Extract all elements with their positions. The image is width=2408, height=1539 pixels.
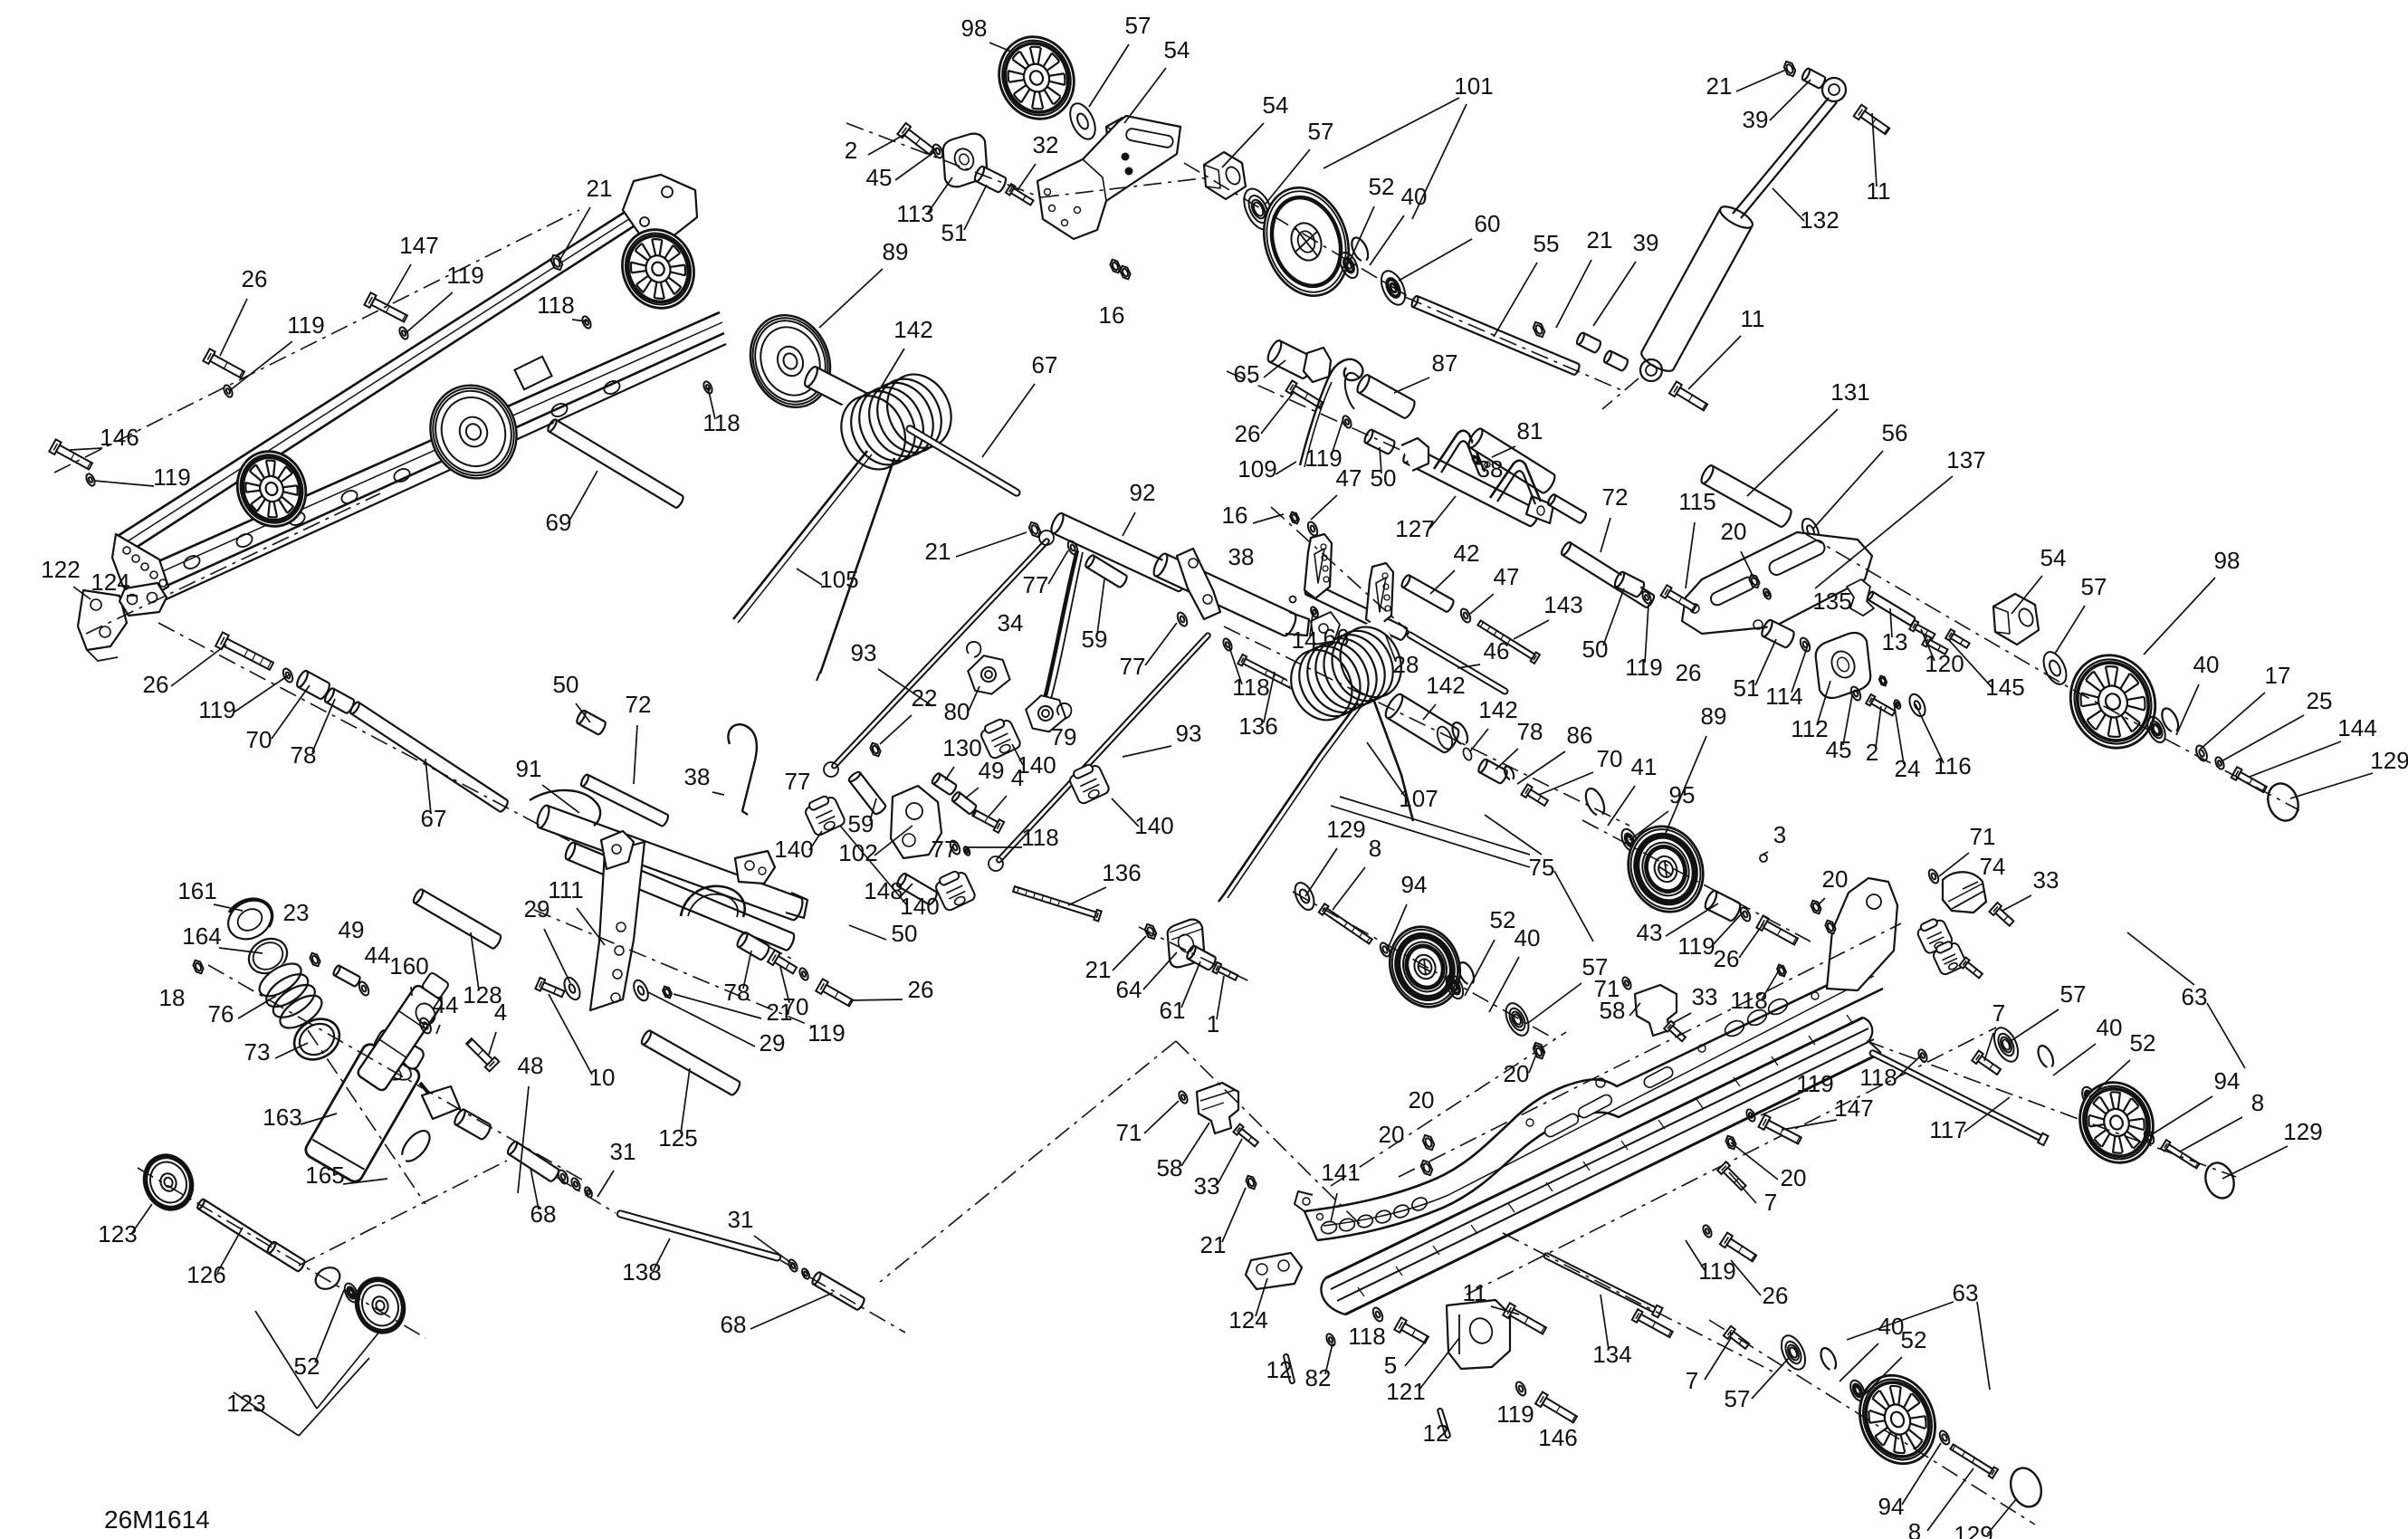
- svg-text:165: 165: [305, 1161, 344, 1189]
- svg-text:17: 17: [2265, 662, 2291, 689]
- svg-text:98: 98: [2214, 547, 2241, 574]
- svg-text:7: 7: [1992, 999, 2005, 1027]
- svg-text:21: 21: [1587, 226, 1613, 253]
- svg-text:93: 93: [1176, 720, 1202, 747]
- svg-text:21: 21: [767, 999, 793, 1026]
- svg-text:118: 118: [1730, 987, 1767, 1014]
- svg-text:12: 12: [1423, 1420, 1449, 1447]
- svg-text:140: 140: [1134, 812, 1173, 839]
- svg-text:21: 21: [1706, 72, 1733, 100]
- svg-text:111: 111: [548, 876, 584, 903]
- svg-text:2: 2: [1866, 739, 1878, 766]
- svg-text:26M1614: 26M1614: [104, 1506, 210, 1534]
- svg-text:45: 45: [1826, 736, 1852, 763]
- svg-text:136: 136: [1102, 859, 1141, 886]
- svg-text:50: 50: [1371, 464, 1397, 492]
- svg-text:51: 51: [1734, 674, 1760, 702]
- svg-text:129: 129: [1326, 816, 1365, 843]
- svg-text:29: 29: [524, 895, 550, 922]
- svg-text:11: 11: [1741, 305, 1765, 332]
- svg-text:41: 41: [1631, 753, 1658, 780]
- svg-text:10: 10: [589, 1064, 616, 1091]
- svg-text:51: 51: [941, 219, 968, 246]
- svg-text:79: 79: [1051, 723, 1077, 750]
- svg-text:20: 20: [1721, 518, 1747, 545]
- svg-text:82: 82: [1305, 1364, 1332, 1391]
- svg-text:140: 140: [900, 893, 939, 920]
- svg-text:3: 3: [1773, 821, 1786, 848]
- svg-text:47: 47: [1494, 563, 1520, 590]
- svg-text:58: 58: [1157, 1154, 1183, 1181]
- svg-text:119: 119: [287, 311, 324, 339]
- svg-text:94: 94: [1878, 1493, 1905, 1520]
- svg-text:31: 31: [610, 1138, 636, 1165]
- svg-text:137: 137: [1946, 446, 1985, 473]
- svg-text:122: 122: [41, 556, 80, 583]
- svg-text:20: 20: [1409, 1086, 1435, 1114]
- svg-text:87: 87: [1432, 349, 1458, 377]
- svg-text:1: 1: [1207, 1010, 1219, 1037]
- svg-text:77: 77: [932, 836, 958, 863]
- svg-text:78: 78: [291, 741, 317, 769]
- svg-text:5: 5: [1384, 1352, 1397, 1379]
- svg-text:50: 50: [892, 920, 918, 947]
- svg-text:148: 148: [864, 877, 903, 904]
- svg-text:20: 20: [1504, 1060, 1530, 1087]
- svg-text:34: 34: [998, 609, 1024, 636]
- svg-text:142: 142: [1478, 696, 1517, 723]
- svg-text:49: 49: [339, 916, 365, 943]
- svg-text:138: 138: [622, 1258, 661, 1286]
- svg-text:70: 70: [246, 726, 272, 753]
- svg-text:43: 43: [1637, 919, 1663, 946]
- svg-text:59: 59: [1082, 626, 1108, 653]
- svg-text:26: 26: [1763, 1282, 1789, 1309]
- svg-text:123: 123: [98, 1220, 137, 1247]
- svg-text:143: 143: [1543, 591, 1582, 618]
- svg-text:50: 50: [1582, 636, 1609, 663]
- svg-text:119: 119: [807, 1019, 845, 1047]
- svg-text:52: 52: [1490, 906, 1516, 933]
- svg-text:80: 80: [944, 698, 970, 725]
- svg-text:119: 119: [198, 696, 235, 723]
- svg-text:46: 46: [1484, 637, 1510, 664]
- svg-text:105: 105: [819, 566, 858, 593]
- svg-text:24: 24: [1895, 755, 1921, 782]
- svg-text:26: 26: [908, 976, 934, 1003]
- svg-text:57: 57: [2060, 980, 2087, 1008]
- svg-text:77: 77: [1023, 571, 1049, 598]
- svg-text:57: 57: [1308, 118, 1334, 145]
- svg-text:91: 91: [516, 755, 542, 782]
- svg-text:118: 118: [1232, 674, 1269, 701]
- svg-text:164: 164: [182, 922, 221, 950]
- svg-text:38: 38: [1228, 543, 1255, 570]
- svg-text:94: 94: [1401, 871, 1428, 898]
- svg-text:128: 128: [463, 981, 502, 1008]
- svg-text:2: 2: [845, 137, 857, 164]
- svg-text:119: 119: [1496, 1400, 1534, 1428]
- svg-text:140: 140: [774, 836, 813, 863]
- svg-text:58: 58: [1600, 997, 1626, 1024]
- svg-text:23: 23: [283, 899, 310, 926]
- svg-text:135: 135: [1812, 588, 1851, 615]
- svg-text:44: 44: [433, 991, 459, 1018]
- svg-text:81: 81: [1517, 417, 1543, 444]
- svg-text:63: 63: [1953, 1279, 1979, 1306]
- svg-text:78: 78: [724, 979, 750, 1006]
- svg-text:71: 71: [1970, 823, 1996, 850]
- svg-text:31: 31: [728, 1206, 754, 1233]
- svg-text:119: 119: [1625, 654, 1662, 681]
- svg-text:38: 38: [684, 763, 711, 790]
- svg-text:59: 59: [848, 810, 874, 837]
- svg-text:161: 161: [177, 877, 216, 904]
- svg-text:65: 65: [1234, 360, 1260, 387]
- svg-text:67: 67: [1032, 351, 1058, 378]
- svg-text:56: 56: [1882, 419, 1908, 446]
- svg-text:95: 95: [1669, 781, 1696, 808]
- svg-text:73: 73: [244, 1038, 271, 1066]
- svg-text:26: 26: [1235, 420, 1261, 447]
- svg-text:64: 64: [1116, 976, 1142, 1003]
- svg-text:20: 20: [1822, 865, 1849, 893]
- svg-text:40: 40: [1401, 183, 1428, 210]
- svg-text:20: 20: [1379, 1121, 1405, 1148]
- svg-text:116: 116: [1934, 752, 1971, 779]
- svg-text:160: 160: [389, 952, 428, 980]
- svg-text:42: 42: [1454, 540, 1480, 567]
- svg-text:101: 101: [1454, 72, 1493, 100]
- svg-text:119: 119: [1698, 1257, 1735, 1285]
- svg-text:29: 29: [760, 1029, 786, 1056]
- svg-text:54: 54: [2040, 544, 2067, 571]
- svg-text:129: 129: [2370, 747, 2408, 774]
- svg-text:76: 76: [208, 1000, 234, 1028]
- svg-text:126: 126: [186, 1261, 225, 1288]
- svg-text:142: 142: [893, 316, 932, 343]
- svg-text:48: 48: [518, 1052, 544, 1079]
- svg-text:115: 115: [1678, 488, 1715, 515]
- svg-text:69: 69: [546, 509, 572, 536]
- svg-text:145: 145: [1985, 674, 2024, 701]
- svg-text:144: 144: [2337, 714, 2376, 741]
- svg-text:94: 94: [2214, 1067, 2241, 1095]
- svg-text:13: 13: [1882, 628, 1908, 655]
- svg-text:163: 163: [263, 1104, 301, 1131]
- svg-text:22: 22: [912, 684, 938, 712]
- svg-text:20: 20: [1781, 1164, 1807, 1191]
- svg-text:123: 123: [226, 1390, 265, 1417]
- svg-text:21: 21: [587, 175, 613, 202]
- svg-text:119: 119: [446, 262, 483, 289]
- svg-text:67: 67: [421, 805, 447, 832]
- svg-text:45: 45: [866, 164, 893, 191]
- svg-text:131: 131: [1830, 378, 1869, 406]
- svg-text:130: 130: [942, 734, 981, 761]
- svg-text:57: 57: [1725, 1385, 1751, 1412]
- svg-text:52: 52: [1369, 173, 1395, 200]
- svg-text:134: 134: [1592, 1341, 1631, 1368]
- svg-text:40: 40: [1515, 924, 1541, 951]
- svg-text:112: 112: [1791, 715, 1828, 742]
- svg-text:52: 52: [2130, 1029, 2156, 1056]
- svg-text:86: 86: [1567, 722, 1593, 749]
- svg-text:32: 32: [1033, 131, 1059, 158]
- svg-text:16: 16: [1099, 301, 1125, 329]
- svg-text:7: 7: [1764, 1189, 1777, 1216]
- svg-text:98: 98: [961, 14, 988, 42]
- svg-text:39: 39: [1633, 229, 1659, 256]
- svg-text:118: 118: [1348, 1323, 1385, 1350]
- svg-text:21: 21: [1085, 956, 1112, 983]
- svg-text:26: 26: [1676, 659, 1702, 686]
- svg-text:146: 146: [1538, 1424, 1577, 1451]
- svg-text:109: 109: [1237, 455, 1276, 483]
- svg-text:146: 146: [100, 424, 139, 451]
- svg-text:28: 28: [1393, 651, 1419, 678]
- svg-text:136: 136: [1238, 712, 1277, 740]
- svg-text:102: 102: [838, 839, 877, 866]
- svg-text:16: 16: [1222, 502, 1248, 529]
- svg-text:119: 119: [1796, 1070, 1833, 1097]
- svg-text:124: 124: [91, 569, 129, 596]
- svg-text:21: 21: [1200, 1231, 1227, 1258]
- svg-text:77: 77: [1120, 653, 1146, 680]
- svg-text:125: 125: [658, 1124, 697, 1152]
- svg-text:118: 118: [1859, 1064, 1897, 1091]
- svg-text:129: 129: [2283, 1118, 2322, 1145]
- svg-text:118: 118: [537, 292, 574, 319]
- svg-text:120: 120: [1925, 650, 1964, 677]
- svg-text:129: 129: [1954, 1521, 1992, 1539]
- svg-text:52: 52: [294, 1353, 320, 1380]
- svg-text:38: 38: [1477, 455, 1504, 483]
- svg-text:92: 92: [1130, 479, 1156, 506]
- svg-text:33: 33: [2033, 866, 2059, 894]
- svg-text:68: 68: [530, 1200, 557, 1228]
- svg-text:55: 55: [1534, 230, 1560, 257]
- svg-text:117: 117: [1929, 1116, 1966, 1143]
- svg-text:75: 75: [1529, 854, 1555, 881]
- svg-text:26: 26: [1714, 945, 1740, 972]
- svg-text:113: 113: [896, 200, 933, 227]
- svg-text:26: 26: [143, 671, 169, 698]
- svg-text:121: 121: [1386, 1378, 1425, 1405]
- svg-text:21: 21: [925, 538, 951, 565]
- svg-text:140: 140: [1017, 751, 1056, 779]
- svg-text:127: 127: [1395, 515, 1434, 542]
- svg-text:47: 47: [1336, 464, 1362, 492]
- svg-text:72: 72: [1602, 483, 1629, 511]
- svg-text:60: 60: [1475, 210, 1501, 237]
- svg-text:54: 54: [1263, 91, 1289, 119]
- svg-text:39: 39: [1743, 106, 1769, 133]
- svg-text:8: 8: [1908, 1518, 1921, 1539]
- svg-text:8: 8: [1369, 835, 1381, 862]
- svg-text:147: 147: [1834, 1095, 1873, 1122]
- svg-text:124: 124: [1228, 1306, 1267, 1333]
- svg-text:25: 25: [2307, 687, 2333, 714]
- svg-text:119: 119: [153, 464, 190, 491]
- svg-text:78: 78: [1517, 718, 1543, 745]
- svg-text:26: 26: [242, 265, 268, 292]
- svg-text:44: 44: [365, 942, 391, 969]
- svg-text:33: 33: [1194, 1172, 1220, 1200]
- svg-text:40: 40: [2097, 1014, 2123, 1041]
- svg-text:63: 63: [2182, 983, 2208, 1010]
- svg-text:49: 49: [979, 757, 1005, 784]
- svg-text:11: 11: [1463, 1279, 1487, 1306]
- svg-text:14: 14: [1292, 626, 1318, 654]
- svg-text:142: 142: [1426, 672, 1465, 699]
- svg-text:89: 89: [883, 238, 909, 265]
- svg-text:11: 11: [1867, 177, 1891, 205]
- svg-text:141: 141: [1321, 1159, 1360, 1186]
- svg-text:40: 40: [2193, 651, 2220, 678]
- svg-text:33: 33: [1692, 983, 1718, 1010]
- svg-text:52: 52: [1901, 1326, 1927, 1353]
- svg-text:8: 8: [2251, 1089, 2264, 1116]
- svg-text:12: 12: [1266, 1356, 1293, 1383]
- svg-text:107: 107: [1399, 785, 1438, 812]
- svg-text:89: 89: [1701, 703, 1727, 730]
- svg-text:61: 61: [1160, 997, 1186, 1024]
- svg-text:119: 119: [1677, 932, 1715, 960]
- svg-text:68: 68: [721, 1311, 747, 1338]
- svg-text:132: 132: [1800, 206, 1839, 234]
- svg-text:18: 18: [159, 984, 186, 1011]
- svg-text:57: 57: [1125, 12, 1151, 39]
- svg-text:70: 70: [1597, 745, 1623, 772]
- svg-text:66: 66: [1323, 624, 1350, 651]
- svg-text:118: 118: [1021, 824, 1058, 851]
- svg-text:74: 74: [1980, 853, 2006, 880]
- svg-text:77: 77: [785, 768, 811, 795]
- svg-text:50: 50: [553, 671, 579, 698]
- svg-text:71: 71: [1116, 1119, 1142, 1146]
- svg-text:118: 118: [702, 409, 740, 436]
- svg-text:57: 57: [2081, 573, 2107, 600]
- svg-text:147: 147: [399, 232, 438, 259]
- svg-text:114: 114: [1765, 683, 1802, 710]
- svg-text:93: 93: [851, 639, 877, 666]
- svg-text:7: 7: [1686, 1367, 1698, 1394]
- svg-text:54: 54: [1164, 36, 1190, 63]
- svg-text:72: 72: [626, 691, 652, 718]
